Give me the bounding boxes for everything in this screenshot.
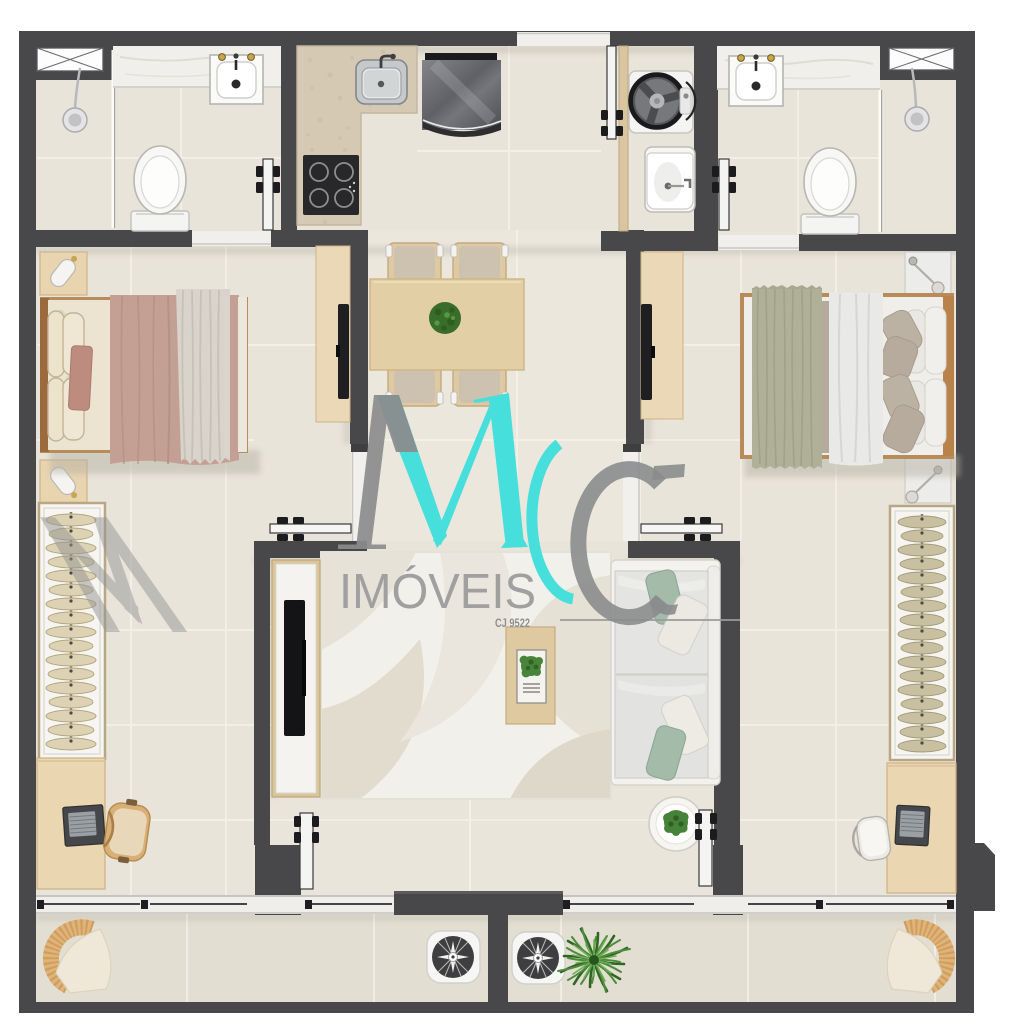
svg-text:IMÓVEIS: IMÓVEIS xyxy=(339,565,536,619)
svg-text:CJ 9522: CJ 9522 xyxy=(495,618,530,630)
